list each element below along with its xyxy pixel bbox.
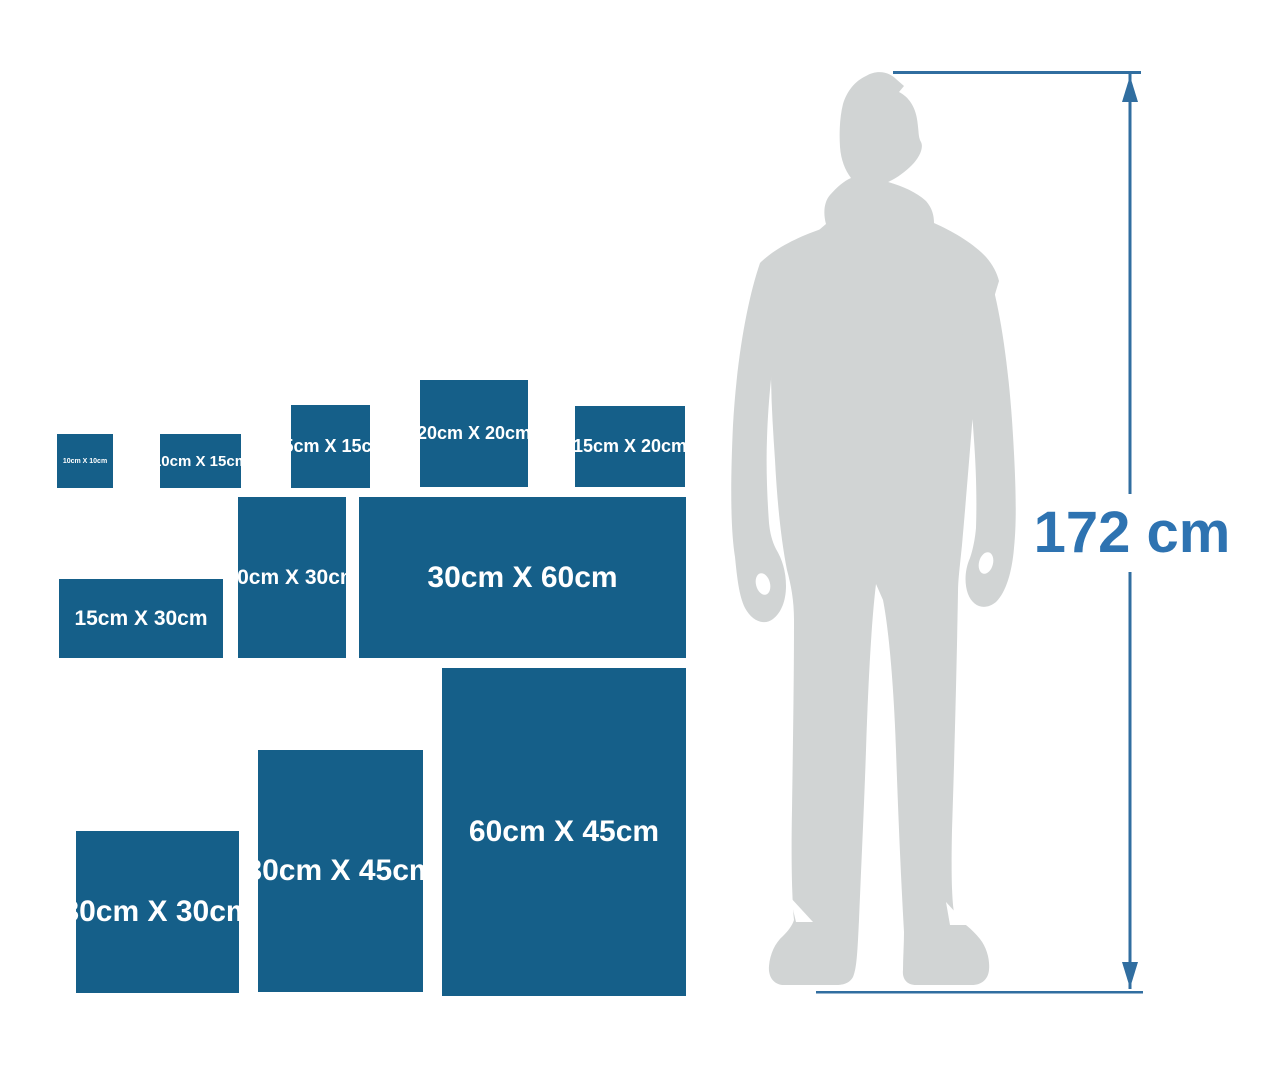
person-silhouette [731, 72, 1015, 985]
person-height-label: 172 cm [1028, 494, 1236, 572]
ground-line [816, 991, 1143, 994]
head-level-line [893, 71, 1141, 74]
size-comparison-diagram: 10cm X 10cm 10cm X 15cm 15cm X 15cm 20cm… [0, 0, 1280, 1066]
arrow-up-icon [1122, 76, 1138, 102]
person-body [769, 72, 999, 985]
arrow-down-icon [1122, 962, 1138, 988]
